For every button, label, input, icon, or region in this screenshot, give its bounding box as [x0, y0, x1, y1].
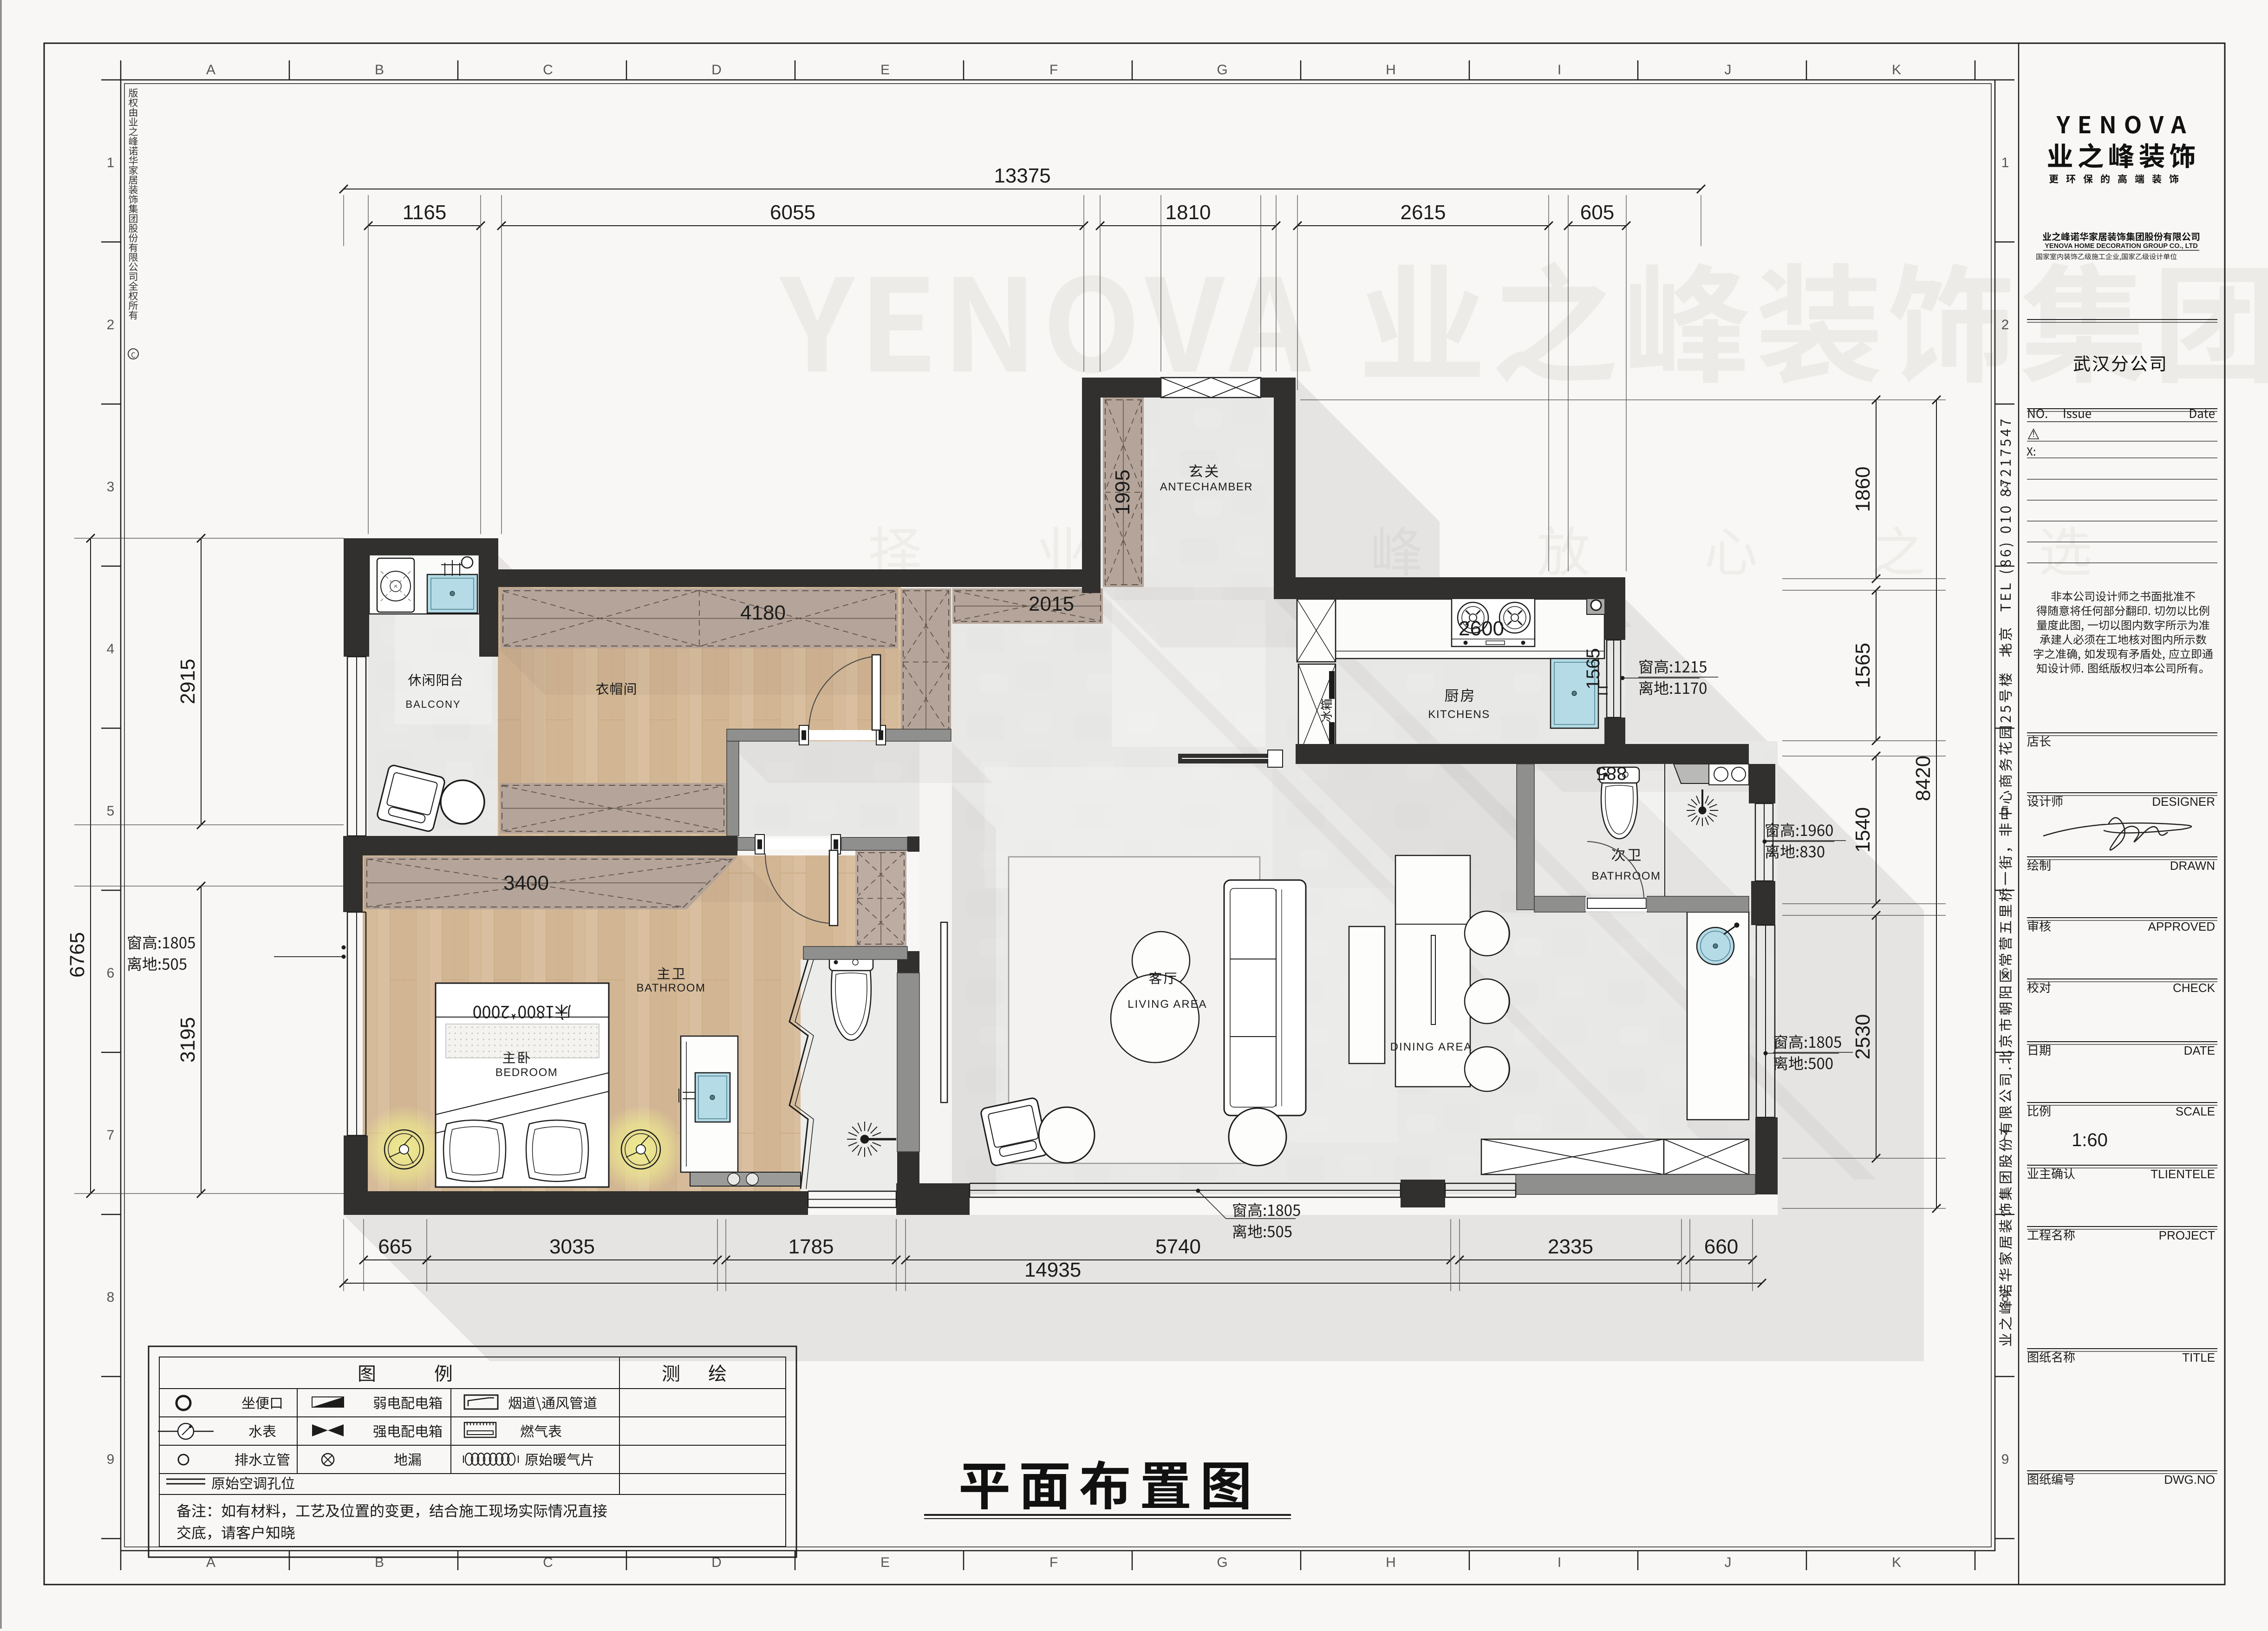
- svg-text:2915: 2915: [176, 659, 199, 705]
- svg-text:J: J: [1725, 1555, 1732, 1570]
- svg-text:BATHROOM: BATHROOM: [637, 982, 706, 994]
- svg-text:PROJECT: PROJECT: [2159, 1228, 2215, 1242]
- svg-text:G: G: [1217, 1555, 1227, 1570]
- svg-text:4: 4: [107, 641, 115, 657]
- svg-text:E: E: [880, 62, 890, 78]
- svg-text:660: 660: [1704, 1235, 1738, 1258]
- svg-text:2335: 2335: [1548, 1235, 1593, 1258]
- svg-text:2600: 2600: [1459, 617, 1504, 640]
- svg-text:14935: 14935: [1024, 1259, 1081, 1281]
- svg-text:6765: 6765: [66, 932, 89, 978]
- svg-text:F: F: [1049, 62, 1058, 78]
- svg-text:F: F: [1049, 1555, 1058, 1570]
- svg-text:LIVING AREA: LIVING AREA: [1127, 998, 1207, 1011]
- svg-text:KITCHENS: KITCHENS: [1428, 708, 1490, 721]
- svg-text:6: 6: [107, 966, 115, 981]
- svg-text:DESIGNER: DESIGNER: [2152, 795, 2215, 809]
- svg-text:1565: 1565: [1851, 643, 1874, 688]
- svg-text:1540: 1540: [1851, 807, 1874, 853]
- svg-text:1: 1: [2001, 155, 2009, 170]
- svg-text:G: G: [1217, 62, 1227, 78]
- svg-text:2615: 2615: [1401, 201, 1446, 224]
- svg-text:2: 2: [107, 317, 115, 333]
- svg-text:BATHROOM: BATHROOM: [1592, 870, 1661, 882]
- svg-text:DRAWN: DRAWN: [2170, 859, 2215, 873]
- svg-text:K: K: [1892, 62, 1901, 78]
- svg-text:5: 5: [107, 803, 115, 819]
- svg-text:2: 2: [2001, 317, 2009, 333]
- svg-text:5740: 5740: [1155, 1235, 1201, 1258]
- svg-text:1: 1: [107, 155, 115, 170]
- svg-text:C: C: [543, 62, 553, 78]
- svg-text:B: B: [375, 62, 384, 78]
- svg-text:605: 605: [1580, 201, 1614, 224]
- svg-text:J: J: [1725, 62, 1732, 78]
- svg-text:BEDROOM: BEDROOM: [495, 1066, 558, 1079]
- svg-text:2015: 2015: [1029, 593, 1074, 615]
- svg-text:H: H: [1386, 1555, 1396, 1570]
- svg-text:1:60: 1:60: [2072, 1130, 2108, 1150]
- svg-text:1860: 1860: [1851, 467, 1874, 512]
- svg-text:7: 7: [107, 1128, 115, 1143]
- svg-text:1565: 1565: [1583, 648, 1603, 690]
- svg-text:3195: 3195: [176, 1017, 199, 1063]
- svg-text:ANTECHAMBER: ANTECHAMBER: [1160, 481, 1253, 493]
- svg-text:TLIENTELE: TLIENTELE: [2151, 1167, 2215, 1181]
- svg-text:1995: 1995: [1111, 470, 1134, 515]
- svg-text:1785: 1785: [789, 1235, 834, 1258]
- svg-text:D: D: [711, 62, 722, 78]
- svg-text:H: H: [1386, 62, 1396, 78]
- svg-text:K: K: [1892, 1555, 1901, 1570]
- svg-text:I: I: [1558, 62, 1561, 78]
- svg-text:13375: 13375: [994, 164, 1050, 187]
- svg-text:DINING AREA: DINING AREA: [1390, 1041, 1473, 1053]
- svg-text:9: 9: [2001, 1452, 2009, 1467]
- svg-text:I: I: [1558, 1555, 1561, 1570]
- svg-text:!: !: [2032, 430, 2034, 439]
- svg-text:SCALE: SCALE: [2176, 1104, 2215, 1118]
- svg-text:YENOVA HOME DECORATION GROUP C: YENOVA HOME DECORATION GROUP CO., LTD: [2045, 242, 2198, 250]
- svg-text:8: 8: [107, 1290, 115, 1305]
- svg-text:9: 9: [107, 1452, 115, 1467]
- svg-text:1810: 1810: [1166, 201, 1211, 224]
- svg-text:DWG.NO: DWG.NO: [2164, 1473, 2215, 1487]
- svg-text:665: 665: [378, 1235, 412, 1258]
- svg-text:DATE: DATE: [2184, 1044, 2215, 1057]
- svg-text:2530: 2530: [1851, 1014, 1874, 1060]
- svg-text:CHECK: CHECK: [2173, 981, 2216, 995]
- svg-text:BALCONY: BALCONY: [405, 698, 461, 710]
- svg-text:8420: 8420: [1912, 756, 1935, 801]
- svg-text:1165: 1165: [403, 201, 447, 224]
- svg-text:E: E: [880, 1555, 890, 1570]
- svg-text:TITLE: TITLE: [2182, 1350, 2215, 1364]
- svg-text:6055: 6055: [770, 201, 815, 224]
- svg-text:APPROVED: APPROVED: [2148, 920, 2216, 933]
- svg-text:3035: 3035: [549, 1235, 595, 1258]
- svg-text:4180: 4180: [740, 601, 786, 624]
- svg-text:3: 3: [107, 479, 115, 495]
- svg-text:3400: 3400: [503, 872, 549, 894]
- svg-text:885: 885: [1596, 763, 1627, 783]
- svg-text:A: A: [206, 62, 215, 78]
